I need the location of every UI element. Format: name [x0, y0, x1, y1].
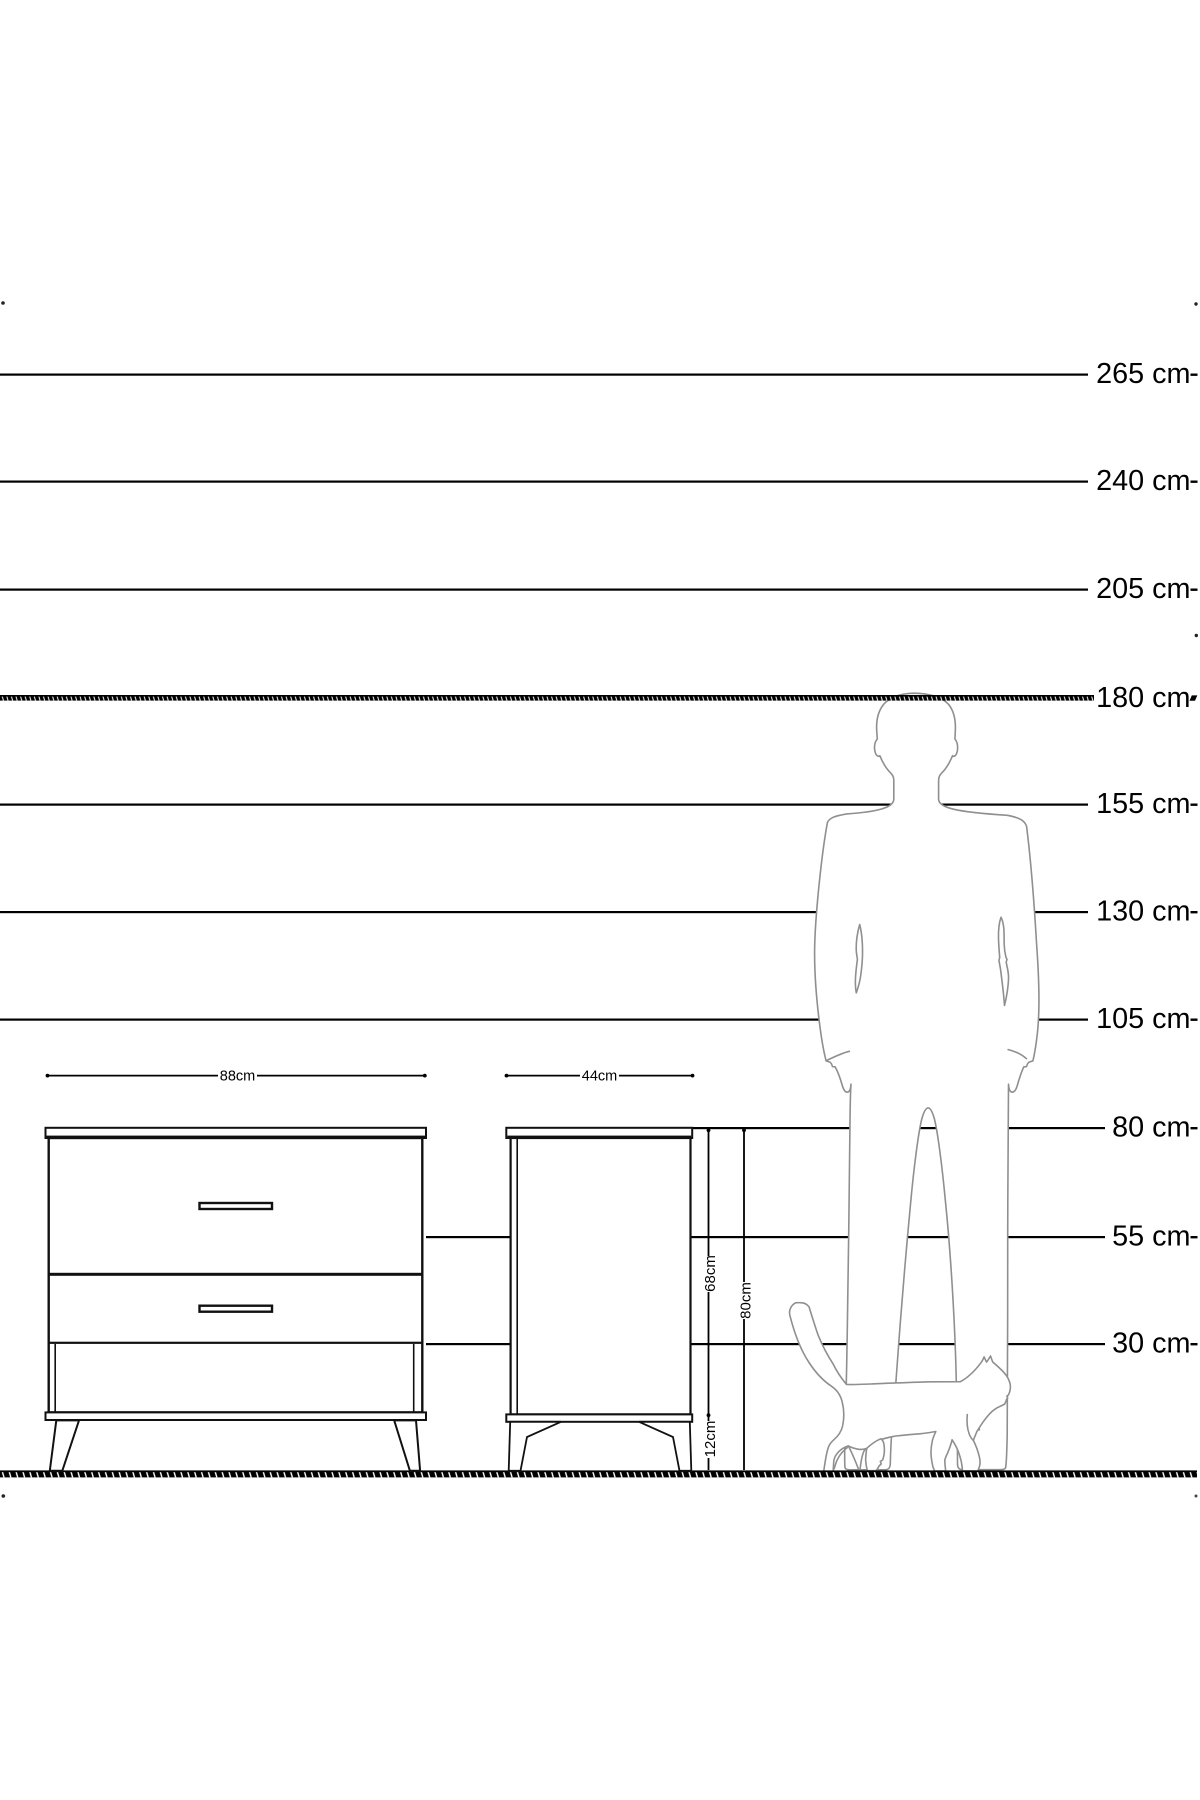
- svg-text:55 cm: 55 cm: [1112, 1220, 1190, 1252]
- svg-text:105 cm: 105 cm: [1096, 1003, 1190, 1035]
- svg-text:265 cm: 265 cm: [1096, 358, 1190, 390]
- svg-text:155 cm: 155 cm: [1096, 788, 1190, 820]
- svg-text:44cm: 44cm: [582, 1069, 617, 1085]
- svg-text:88cm: 88cm: [220, 1069, 255, 1085]
- svg-text:12cm: 12cm: [702, 1421, 719, 1458]
- svg-text:68cm: 68cm: [702, 1255, 719, 1292]
- svg-text:130 cm: 130 cm: [1096, 895, 1190, 927]
- svg-text:80cm: 80cm: [738, 1282, 755, 1319]
- svg-text:240 cm: 240 cm: [1096, 465, 1190, 497]
- svg-text:180 cm: 180 cm: [1096, 682, 1190, 714]
- svg-text:205 cm: 205 cm: [1096, 573, 1190, 605]
- svg-text:80 cm: 80 cm: [1112, 1111, 1190, 1143]
- svg-text:30 cm: 30 cm: [1112, 1327, 1190, 1359]
